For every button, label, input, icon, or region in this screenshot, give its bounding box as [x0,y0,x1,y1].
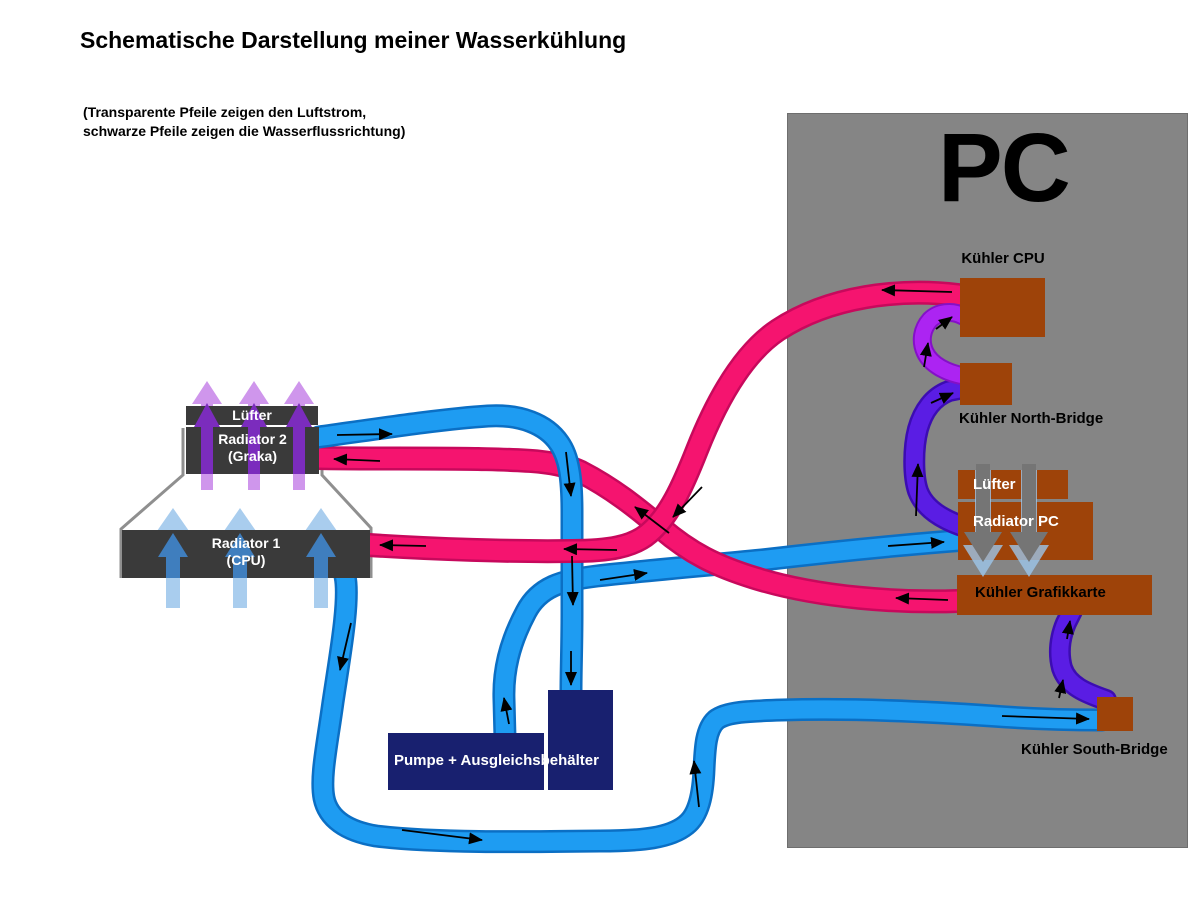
legend-line1: (Transparente Pfeile zeigen den Luftstro… [83,103,405,122]
luefter-left-label: Lüfter [186,407,318,423]
legend-note: (Transparente Pfeile zeigen den Luftstro… [83,103,405,141]
radiator1-label: Radiator 1 (CPU) [122,535,370,569]
kuehler-cpu-label: Kühler CPU [923,250,1083,267]
radiator2-label: Radiator 2 (Graka) [186,431,319,465]
radiator2-line2: (Graka) [186,448,319,465]
pump-label: Pumpe + Ausgleichsbehälter [394,752,599,769]
radiator2-line1: Radiator 2 [186,431,319,448]
kuehler-southbridge-label: Kühler South-Bridge [1021,741,1168,758]
kuehler-grafikkarte-label: Kühler Grafikkarte [975,584,1106,601]
luefter-pc-label: Lüfter [973,476,1016,493]
radiator1-line2: (CPU) [122,552,370,569]
radiator1-line1: Radiator 1 [122,535,370,552]
page-title: Schematische Darstellung meiner Wasserkü… [80,27,626,53]
legend-line2: schwarze Pfeile zeigen die Wasserflussri… [83,122,405,141]
radiator-pc-label: Radiator PC [973,513,1059,530]
wasserkuehlung-schematic: Schematische Darstellung meiner Wasserkü… [0,0,1200,900]
kuehler-northbridge-label: Kühler North-Bridge [959,410,1103,427]
pc-case-label: PC [938,112,1069,224]
